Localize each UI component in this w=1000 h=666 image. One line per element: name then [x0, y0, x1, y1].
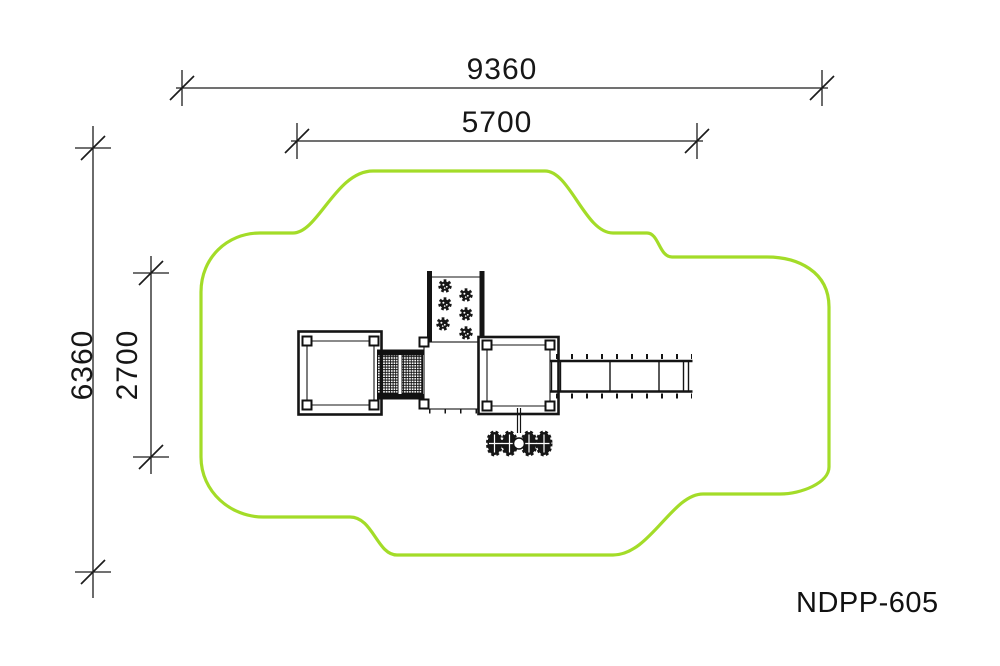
- spring-rider-seat: [488, 432, 517, 455]
- model-label: NDPP-605: [796, 587, 939, 619]
- net-bridge-top-rail: [377, 350, 424, 356]
- post: [483, 341, 492, 350]
- climbing-hold: [440, 299, 451, 310]
- post: [420, 400, 429, 409]
- climbing-hold: [461, 290, 472, 301]
- dimension-inner-height: 2700: [111, 256, 169, 474]
- dimension-overall-width: 9360: [170, 53, 834, 106]
- plan-drawing-canvas: 9360 5700 6360 2700: [0, 0, 1000, 666]
- post: [483, 402, 492, 411]
- post: [370, 401, 379, 410]
- climbing-wall: [427, 271, 485, 342]
- climbing-wall-right-rail: [480, 271, 485, 338]
- net-panel: [402, 355, 423, 394]
- central-deck: [424, 342, 479, 412]
- dimension-label: 5700: [462, 106, 533, 139]
- dimension-label: 2700: [111, 330, 144, 401]
- net-bridge-bottom-rail: [377, 394, 424, 400]
- ladder-rungs: [552, 362, 689, 391]
- plan-drawing: 9360 5700 6360 2700: [0, 0, 1000, 666]
- post: [303, 401, 312, 410]
- right-platform: [479, 337, 559, 414]
- climbing-wall-left-rail: [427, 271, 432, 342]
- climbing-hold: [461, 328, 472, 339]
- overhead-ladder: [550, 357, 693, 397]
- climbing-hold: [461, 309, 472, 320]
- climbing-hold: [440, 281, 451, 292]
- post: [420, 338, 429, 347]
- net-panel: [378, 355, 399, 394]
- post: [370, 337, 379, 346]
- left-platform: [299, 332, 382, 415]
- net-bridge: [377, 338, 429, 409]
- spring-rider-hub: [514, 438, 525, 449]
- climbing-hold: [438, 319, 449, 330]
- dimension-label: 9360: [467, 53, 538, 86]
- dimension-overall-height: 6360: [66, 126, 111, 598]
- post: [546, 341, 555, 350]
- post: [303, 337, 312, 346]
- dimension-inner-width: 5700: [285, 106, 709, 159]
- post: [546, 402, 555, 411]
- dimension-label: 6360: [66, 330, 99, 401]
- central-deck-outline: [424, 342, 479, 409]
- spring-rider-seat: [522, 432, 551, 455]
